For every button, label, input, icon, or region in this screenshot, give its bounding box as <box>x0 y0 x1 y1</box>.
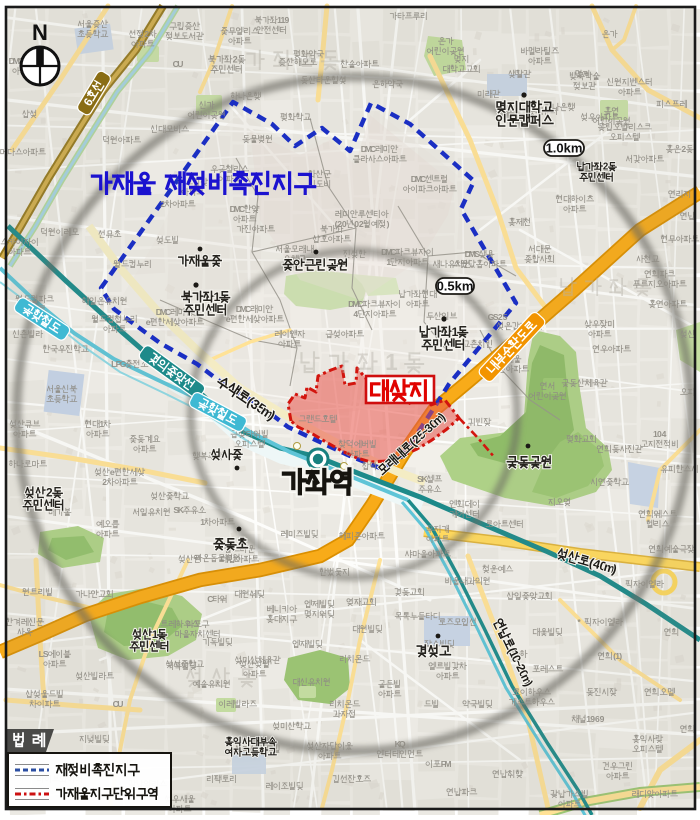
svg-text:C: C <box>165 307 171 317</box>
svg-text:2: 2 <box>681 144 686 154</box>
svg-text:C: C <box>239 204 245 214</box>
svg-text:2: 2 <box>46 486 53 500</box>
svg-text:4: 4 <box>662 429 667 439</box>
svg-text:9: 9 <box>600 714 605 724</box>
svg-text:9: 9 <box>285 15 290 25</box>
svg-text:M: M <box>444 759 451 769</box>
svg-text:S: S <box>43 649 49 659</box>
svg-text:U: U <box>177 59 183 69</box>
svg-text:5: 5 <box>503 312 508 322</box>
svg-text:K: K <box>178 505 185 515</box>
svg-text:1: 1 <box>214 290 221 304</box>
svg-text:C: C <box>390 247 396 257</box>
svg-text:C: C <box>207 594 213 604</box>
svg-text:): ) <box>619 651 622 661</box>
svg-text:1: 1 <box>152 629 158 641</box>
svg-text:C: C <box>357 299 363 309</box>
svg-text:Q: Q <box>399 739 406 749</box>
svg-text:e: e <box>110 467 115 477</box>
svg-text:1.0km: 1.0km <box>546 141 583 156</box>
svg-text:2: 2 <box>359 219 364 229</box>
svg-text:1: 1 <box>452 325 459 339</box>
svg-text:2: 2 <box>603 162 608 173</box>
svg-text:C: C <box>245 304 251 314</box>
svg-text:1: 1 <box>200 517 205 527</box>
svg-text:C: C <box>474 249 480 259</box>
svg-text:C: C <box>420 174 426 184</box>
svg-text:C: C <box>370 144 376 154</box>
svg-text:e: e <box>146 317 151 327</box>
svg-text:1: 1 <box>385 349 398 375</box>
svg-text:2: 2 <box>160 199 165 209</box>
svg-text:2: 2 <box>102 477 107 487</box>
svg-text:G: G <box>120 359 127 369</box>
svg-text:N: N <box>32 20 48 45</box>
svg-text:0.5km: 0.5km <box>437 279 474 294</box>
svg-text:): ) <box>387 219 390 229</box>
svg-text:0: 0 <box>342 219 347 229</box>
svg-text:1: 1 <box>99 419 104 429</box>
svg-text:2: 2 <box>144 29 149 39</box>
svg-text:4: 4 <box>353 309 358 319</box>
svg-text:2: 2 <box>233 54 238 64</box>
svg-text:U: U <box>117 699 123 709</box>
svg-text:1: 1 <box>386 257 391 267</box>
svg-text:K: K <box>421 474 428 484</box>
